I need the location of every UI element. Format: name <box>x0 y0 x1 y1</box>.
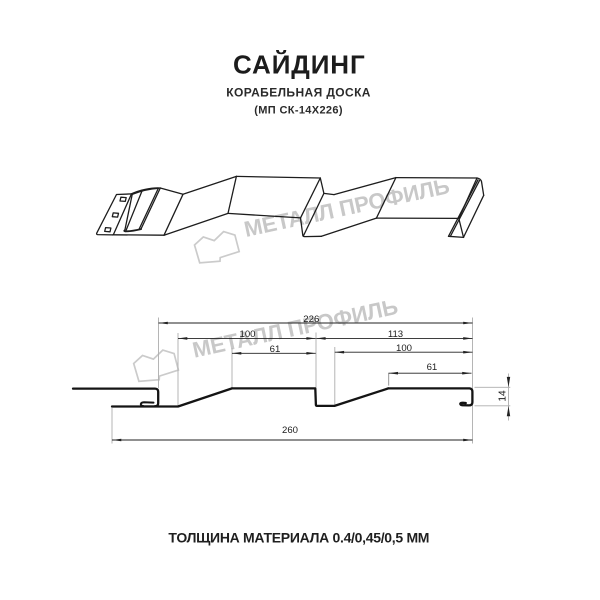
svg-text:260: 260 <box>282 425 298 436</box>
svg-text:(МП СК-14Х226): (МП СК-14Х226) <box>254 105 343 117</box>
svg-text:14: 14 <box>497 390 508 402</box>
svg-text:226: 226 <box>303 314 319 325</box>
svg-text:61: 61 <box>270 344 281 355</box>
svg-text:61: 61 <box>427 362 438 373</box>
svg-text:ТОЛЩИНА МАТЕРИАЛА 0.4/0,45/0,5: ТОЛЩИНА МАТЕРИАЛА 0.4/0,45/0,5 ММ <box>168 530 429 546</box>
svg-text:КОРАБЕЛЬНАЯ ДОСКА: КОРАБЕЛЬНАЯ ДОСКА <box>226 86 371 100</box>
svg-text:113: 113 <box>388 329 403 340</box>
svg-text:100: 100 <box>239 329 255 340</box>
svg-text:САЙДИНГ: САЙДИНГ <box>233 50 366 80</box>
svg-text:100: 100 <box>396 343 412 354</box>
